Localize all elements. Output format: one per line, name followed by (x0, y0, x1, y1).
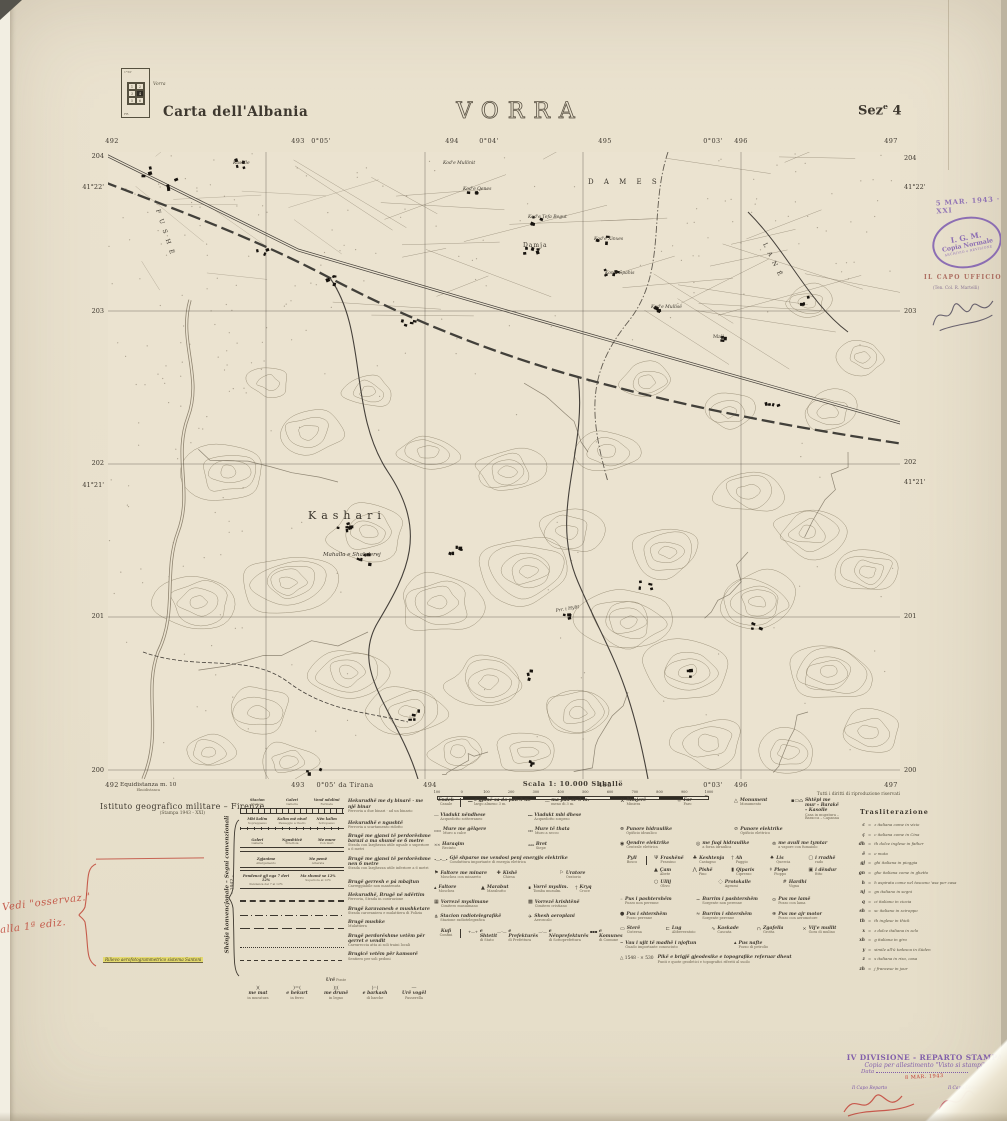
legend-item: —·—e Nënprefekturësdi Sottoprefettura (538, 929, 583, 943)
legend-italian: Punti e quote geodetici e topografici ri… (658, 961, 792, 965)
legend-item-text: Pus me ajr motorPozzo con aeromotore (778, 912, 842, 921)
legend-item-text: Vau i ujit të madhë i njoftunGuado impor… (625, 941, 728, 950)
legend-row: ●Pus i shtershëmPozzo perenne≈Burrim i s… (620, 912, 842, 921)
legend-description: Brugë karavanesh e mushketareStrada caro… (348, 907, 432, 916)
legend-item-text: LisQuercia (776, 856, 803, 865)
legend-row: ▴FaltoreMoschea▲MarabutMarabutto∎Vorrë m… (434, 885, 616, 894)
translit-letter: zh (852, 967, 865, 972)
legend-item: ∩ZgafellaGrotta (757, 926, 797, 935)
legend-tree-line: ○UllijOlivo◌ProtokalleAgrumi#HardhiVigna (654, 880, 842, 889)
legend-item: ▭▭Mure me gëlqereMuro a calce (434, 827, 522, 836)
legend-row: KufiConfini+—+e Shtetitdi Stato—··—e Pre… (434, 929, 616, 943)
mark-italian: Stazione (241, 803, 274, 806)
legend-item-text: i rradhërado (815, 856, 842, 865)
legend-line-sample: ▭▭ (434, 828, 441, 833)
legend-glyph: ◌ (718, 880, 722, 885)
legend-item: ▮QiparisCipresso (731, 868, 765, 877)
legend-italian: rado (815, 861, 842, 865)
legend-item-text: FaltoreMoschea (439, 885, 475, 894)
translit-letter: y (852, 948, 865, 953)
legend-item-text: e Prefekturësdi Prefettura (508, 929, 538, 943)
legend-line-sample: +—+ (468, 929, 478, 934)
legend-item-text: LugAbbeveratoio (672, 926, 705, 935)
legend-bridge-item: )◦(e barkashdi barche (357, 986, 393, 1001)
legend-italian: di Prefettura (508, 939, 538, 943)
bridge-label-it: in legno (329, 997, 343, 1001)
scale-tick-label: 300 (533, 790, 539, 794)
legend-italian: Pozzo perenne (626, 917, 690, 921)
group-italian: Bosco (620, 861, 644, 865)
legend-glyph: ~ (696, 898, 700, 903)
legend-glyph: ≈ (696, 912, 700, 917)
transliteration-row: xh=g italiana in giro (852, 937, 1004, 943)
mark-italian: Soprappasso (241, 822, 274, 825)
legend-line-sample: ×× (434, 842, 440, 847)
legend-symbol-marks: StacionStazioneGaleriGalleriaVend ndalim… (240, 799, 344, 806)
legend-item-text: PishëPino (699, 868, 726, 877)
legend-item: ──ma pak se 3 m.meno di 3 m. (545, 798, 616, 807)
legend-italian: Faro (683, 803, 728, 807)
legend-mark: Ma shumë se 12%Superiore al 12% (292, 875, 344, 886)
legend-item-text: Pus i shtershëmPozzo perenne (626, 912, 690, 921)
legend-glyph: ⊚ (772, 842, 776, 847)
legend-row: Mbi kalimSoprappassoKalim më nivelPassag… (240, 818, 432, 830)
legend-item: ◎me fuqi hidraulikea forza idraulica (696, 841, 766, 850)
legend-item: ⊚me avull me tymtara vapore con fumaiolo (772, 841, 842, 850)
graticule-bottom-label: 0°05' da Tirana (316, 781, 373, 789)
bridge-name-it: Ponte (335, 978, 346, 982)
legend-item-text: MarabutMarabutto (487, 885, 522, 894)
legend-italian: Oratorio (566, 876, 616, 880)
translit-letter: sh (852, 909, 865, 914)
legend-item-text: Vorrezë krishtënëCimitero cristiano (535, 900, 616, 909)
legend-italian: Carrareccia atta ai soli traini locali (348, 944, 432, 948)
map-canvas: KasolleKod'e MullinitKod'e QenesKod'e Te… (108, 152, 900, 779)
legend-mark: Me pemëAlberata (292, 858, 344, 865)
equals-sign: = (868, 870, 871, 875)
legend-glyph: † (575, 886, 578, 891)
place-name-label: Kod'e Tefa Begut (527, 214, 567, 220)
scale-ticks: 10001002003004005006007008009001000 m. (437, 790, 709, 795)
equals-sign: = (868, 841, 871, 846)
legend-glyph: ⚑ (434, 871, 438, 876)
equals-sign: = (868, 918, 871, 923)
legend-item-text: KaskadeCascata (717, 926, 750, 935)
legend-bridge-title: Urë Ponte (240, 966, 432, 985)
legend-glyph: ⚒ (620, 799, 624, 804)
index-cell-2: 2 (136, 83, 144, 90)
legend-italian: Cimitero musulmano (441, 905, 522, 909)
graticule-right-label: 201 (904, 612, 916, 620)
graticule-left-label: 203 (70, 307, 104, 315)
paper-crease (948, 0, 949, 170)
place-name-label: Damja (523, 242, 548, 249)
legend-description: Brugë gerresh e pá mbajtunCarreggiabile … (348, 880, 432, 889)
legend-item: —··—e Prefekturësdi Prefettura (497, 929, 532, 943)
graticule-left-label: 200 (70, 766, 104, 774)
sez-label: Sez (858, 103, 883, 118)
legend-glyph: ▲ (481, 886, 485, 891)
equals-sign: = (868, 860, 871, 865)
scale-tick-label: 800 (656, 790, 662, 794)
graticule-top-label: 496 (734, 137, 748, 145)
legend-item: ●Pus i shtershëmPozzo perenne (620, 912, 690, 921)
legend-item: ⊗Punore hidraulikeOpificio idraulico (620, 827, 728, 836)
translit-letter: nj (852, 890, 865, 895)
graticule-bottom-label: 496 (734, 781, 748, 789)
graticule-right-label: 41°22' (904, 183, 926, 191)
sez-sup: e (883, 102, 888, 111)
legend-item-text: MinjerëMiniera (626, 798, 671, 807)
legend-glyph: ⋀ (693, 868, 697, 873)
graticule-top-label: 495 (598, 137, 612, 145)
translit-description: z dolce italiana in zelo (874, 929, 1004, 933)
legend-row: ZgjanimeAllargamentoMe pemëAlberataBrugë… (240, 857, 432, 871)
legend-item-text: KeshtenjaCastagno (699, 856, 726, 865)
legend-symbol-finedash (240, 960, 344, 961)
legend-description: Hekurudhë me dy binarë · me një binarFer… (348, 799, 432, 813)
index-sheet-name: Vorra (153, 82, 166, 87)
legend-item: †KryqCroce (575, 885, 616, 894)
legend-glyph: △ (734, 799, 738, 804)
legend-item: ×Vij'e mullitGora di mulino (802, 926, 842, 935)
equals-sign: = (868, 899, 871, 904)
legend-item-text: Shesh aeroplaniAeroscalo (534, 914, 616, 923)
legend-row: ◉Qendre elektrikeCentrale elettrica◎me f… (620, 841, 842, 850)
scale-tick-label: 200 (508, 790, 514, 794)
equals-sign: = (868, 832, 871, 837)
legend-row: PyllBoscoΨFrashënëFrassino♣KeshtenjaCast… (620, 856, 842, 892)
data-label: Data (861, 1069, 874, 1075)
place-name-label: Kod'e Xinxes (593, 236, 624, 242)
legend-item-text: ÇamAbete (660, 868, 688, 877)
legend-symbol-block: Mbi kalimSoprappassoKalim më nivelPassag… (240, 818, 344, 830)
legend-item-text: Shtëpi me mur – Barakë – KasolleCasa in … (805, 798, 842, 821)
legend-item-text: MonumentMonumento (740, 798, 785, 807)
scale-tick-label: 900 (681, 790, 687, 794)
scale-tick-label: 100 (434, 790, 440, 794)
legend-item-text: Burrim i pashtershëmSorgente non perenne (702, 897, 766, 906)
legend-item-text: Vorrë myslim.Tomba musulm. (533, 885, 569, 894)
graticule-right-label: 202 (904, 458, 916, 466)
legend-item: ━━e gjanë sa do pak 3 m.largo almeno 3 m… (468, 798, 539, 807)
graticule-bottom-label: 497 (884, 781, 898, 789)
transliteration-row: sh=sc italiano in sciroppo (852, 908, 1004, 914)
legend-item-text: Qendre elektrikeCentrale elettrica (626, 841, 690, 850)
legend-item: ◉Qendre elektrikeCentrale elettrica (620, 841, 690, 850)
place-name-label: Kasolle (232, 160, 250, 166)
legend-item-text: FarFaro (683, 798, 728, 807)
bridge-name: Urë (326, 978, 335, 983)
legend-glyph: ∩ (757, 927, 761, 932)
scale-tick-label: 100 (483, 790, 489, 794)
translit-letter: x (852, 929, 865, 934)
legend-item: ≈Burrim i shtershëmSorgente perenne (696, 912, 766, 921)
legend-symbol-block: GaleriGalleriaNgushticëStrettoiaMe mureC… (240, 839, 344, 853)
legend-glyph: ⚐ (559, 871, 563, 876)
legend-item-text: KryqCroce (580, 885, 617, 894)
translit-letter: ë (852, 852, 865, 857)
place-name-label: Kod'e Mullinit (442, 160, 475, 166)
translit-description: gn italiano in segni (874, 890, 1004, 894)
legend-glyph: # (783, 880, 787, 885)
legend-glyph: ♠ (770, 856, 774, 861)
translit-description: c italiana come in Cina (874, 833, 1004, 837)
sez-num: 4 (893, 103, 902, 118)
legend-mark: Kalim më nivelPassaggio a livello (275, 818, 310, 825)
legend-italian: Opificio idraulico (626, 832, 728, 836)
index-cell-1: 1 (128, 83, 136, 90)
legend-italian: Acquedotto sospeso (534, 818, 616, 822)
sheet-number: Seze 4 (858, 102, 902, 118)
index-cell-5: 5 (128, 97, 136, 104)
legend-item: ▴Pus naftePozzo di petrolio (734, 941, 842, 950)
legend-italian: Monumento (740, 803, 785, 807)
legend-row: ▭▭Mure me gëlqereMuro a calce▫▫Mure të t… (434, 827, 616, 836)
index-grid: 123456 (127, 82, 145, 105)
legend-glyph: ✈ (528, 915, 532, 920)
legend-item: ⊛Pus me ajr motorPozzo con aeromotore (772, 912, 842, 921)
legend-row-bridges: Urë Ponte)(me matin muratura)=(e hekurti… (240, 966, 432, 1001)
legend-item: ⋀PishëPino (693, 868, 727, 877)
legend-row: ▭SterëCisterna⊏LugAbbeveratoio∿KaskadeCa… (620, 926, 842, 935)
legend-row: ⊗Punore hidraulikeOpificio idraulico⊘Pun… (620, 827, 842, 836)
legend-item-text: e Komunesdi Comune (599, 929, 623, 943)
translit-description: h aspirata come nel toscano 'asa per cas… (874, 881, 1004, 885)
graticule-right-label: 200 (904, 766, 916, 774)
legend-glyph: ▦ (434, 900, 439, 905)
transliteration-row: x=z dolce italiana in zelo (852, 928, 1004, 934)
legend-glyph: × (802, 927, 806, 932)
mark-italian: Fermata (310, 803, 343, 806)
legend-item: ▴FaltoreMoschea (434, 885, 475, 894)
legend-italian: Conduttura importante di energia elettri… (450, 861, 616, 865)
legend-italian: Opificio elettrico (740, 832, 842, 836)
legend-italian: Ferrovia, Strada in costruzione (348, 898, 432, 902)
legend-italian: Pozzo con aeromotore (778, 917, 842, 921)
red-annotation-line (96, 857, 204, 859)
legend-bridge-items: )(me matin muratura)=(e hekurtin ferro)¦… (240, 986, 432, 1001)
legend-item-text: ma pak se 3 m.meno di 3 m. (551, 798, 616, 807)
graticule-bottom-label: 494 (423, 781, 437, 789)
legend-item-text: e Nënprefekturësdi Sottoprefettura (549, 929, 589, 943)
transliteration-row: ç=c italiana come in Cina (852, 832, 1004, 838)
graticule-left-label: 201 (70, 612, 104, 620)
legend-italian: Chiesa (503, 876, 553, 880)
legend-symbol-road3 (240, 888, 344, 889)
legend-glyph: Ψ (654, 856, 658, 861)
bridge-label-it: in muratura (247, 997, 268, 1001)
legend-glyph: ⊘ (734, 827, 738, 832)
legend-italian: Guado importante conosciuto (625, 946, 728, 950)
translit-letter: xh (852, 938, 865, 943)
legend-description: Brugë me gjansi të perdorëshme nen 6 met… (348, 857, 432, 871)
legend-bridge-item: —Urë vogëlPasserella (396, 986, 432, 1001)
legend-italian: di Sottoprefettura (549, 939, 589, 943)
legend-item-text: KishëChiesa (503, 871, 553, 880)
equals-sign: = (868, 851, 871, 856)
legend-item-text: AhFaggio (736, 856, 765, 865)
mark-italian: Strettoia (276, 842, 309, 845)
legend-row: ⋔Stacion radiotelegrafikëStazione radiot… (434, 914, 616, 923)
translit-letter: h (852, 881, 865, 886)
graticule-right-label: 41°21' (904, 478, 926, 486)
graticule-bottom-label: 493 (291, 781, 305, 789)
scale-tick-label: 0 (461, 790, 463, 794)
transliteration-row: zh=j francese in jour (852, 966, 1004, 972)
legend-italian: Moschea con minareto (440, 876, 490, 880)
place-name-label: Kod'e Qenes (462, 186, 492, 192)
legend-italian: Abete (660, 873, 688, 877)
legend-line-sample: ▫▫ (528, 828, 533, 833)
translit-letter: ç (852, 833, 865, 838)
legend-glyph: ● (620, 912, 624, 917)
legend-tree-rows: ΨFrashënëFrassino♣KeshtenjaCastagno†AhFa… (654, 856, 842, 892)
legend-symbol-dashdot (240, 915, 344, 916)
graticule-bottom-label: 492 (105, 781, 119, 789)
legend-italian: Carreggiabile non mantenuta (348, 885, 432, 889)
legend-item: ××HaraqimRecinto (434, 842, 522, 851)
legend-italian: Cisterna (627, 931, 660, 935)
legend-italian: di Comune (599, 939, 623, 943)
legend-item: ▲MarabutMarabutto (481, 885, 522, 894)
place-name-label: Kon'e Spahis (604, 270, 635, 276)
legend-glyph: ▴ (734, 941, 737, 946)
legend-item-text: Vorrezë myslimaneCimitero musulmano (441, 900, 522, 909)
legend-item-text: Faltore me minareMoschea con minareto (440, 871, 490, 880)
legend-item: ⚒MinjerëMiniera (620, 798, 671, 807)
legend-item: ◦Pus i pashtershëmPozzo non perenne (620, 897, 690, 906)
index-corner-label: 1°50' (124, 70, 132, 74)
translit-description: ghe italiana come in ghetto (874, 871, 1004, 875)
legend-item-text: FrashënëFrassino (660, 856, 687, 865)
legend-tree-line: ▲ÇamAbete⋀PishëPino▮QiparisCipressoǂPlep… (654, 868, 842, 877)
legend-description: Hekurudhë, Brugë në ndërtimFerrovia, Str… (348, 893, 432, 902)
legend-glyph: ▩ (528, 900, 533, 905)
legend-bridge-item: )¦(me drunëin legno (318, 986, 354, 1001)
legend-row: GaleriGalleriaNgushticëStrettoiaMe mureC… (240, 834, 432, 852)
legend-item: ▩Vorrezë krishtënëCimitero cristiano (528, 900, 616, 909)
equals-sign: = (868, 937, 871, 942)
legend-geodetic-row: △ 1548 · × 530Pikë e brigjë gjeodesike e… (620, 955, 792, 964)
legend-italian: a vapore con fumaiolo (778, 846, 842, 850)
legend-symbol-block: Pendencë gji nga 7 deri 12%Pendenza dal … (240, 875, 344, 888)
legend-description: Brugë perdorëshme vetëm për qerret e ven… (348, 934, 432, 948)
legend-item: ⊙Pus me lamëPozzo con lama (772, 897, 842, 906)
legend-symbol-road4 (240, 867, 344, 871)
legend-item-text: Stacion radiotelegrafikëStazione radiote… (440, 914, 522, 923)
legend-item: #HardhiVigna (783, 880, 842, 889)
legend-glyph: ⌣ (620, 941, 623, 946)
group-italian: Confini (434, 934, 458, 938)
index-corner-label: FR. (124, 112, 129, 116)
translit-description: simile all'ü tedesca in Süden (874, 948, 1004, 952)
legend-row: Brugë mushkeMulattiera (240, 920, 432, 929)
page-curl (918, 1038, 1007, 1121)
equals-sign: = (868, 880, 871, 885)
legend-row: Brugë karavanesh e mushketareStrada caro… (240, 907, 432, 916)
capo-ufficio-name: (Ten. Col. R. Martelli) (933, 285, 979, 290)
legend-symbol-marks: GaleriGalleriaNgushticëStrettoiaMe mureC… (240, 839, 344, 846)
legend-italian: Pioppo (774, 873, 803, 877)
legend-item: ♠LisQuercia (770, 856, 804, 865)
legend-symbol-block (240, 899, 344, 903)
graticule-top-label: 0°05' (311, 137, 330, 145)
transliteration-row: gj=ghi italiana in pioggia (852, 860, 1004, 866)
graticule-top-label: 494 (445, 137, 459, 145)
legend-row: ××HaraqimRecintoʌʌʌBretSiepe (434, 842, 616, 851)
legend-italian: Faggio (736, 861, 765, 865)
legend-symbol-marks: Mbi kalimSoprappassoKalim më nivelPassag… (240, 818, 344, 825)
series-title: Carta dell'Albania (163, 104, 308, 120)
bridge-label-it: Passerella (405, 997, 423, 1001)
scale-tick-label: 400 (557, 790, 563, 794)
legend-item-text: HaraqimRecinto (442, 842, 522, 851)
legend-item-text: ZgafellaGrotta (763, 926, 796, 935)
legend-glyph: ∿ (711, 927, 715, 932)
scan-edge-strip (0, 0, 10, 1121)
legend-italian: Sorgente perenne (702, 917, 766, 921)
legend-item-text: PlepePioppo (774, 868, 803, 877)
transliteration-row: c=z italiana come in vizio (852, 822, 1004, 828)
legend-italian: Muro a calce (443, 832, 522, 836)
translit-description: z italiana come in vizio (874, 823, 1004, 827)
legend-item: ▪▭⌂Shtëpi me mur – Barakë – KasolleCasa … (791, 798, 842, 821)
legend-line-sample: •—•—• (434, 857, 448, 862)
translit-description: th inglese in thick (874, 919, 1004, 923)
legend-symbol-marks: Pendencë gji nga 7 deri 12%Pendenza dal … (240, 875, 344, 886)
legend-symbol-rail2 (240, 808, 344, 814)
legend-italian: Casa in muratura – Baracca – Capanna (805, 814, 842, 822)
legend-item: ▢i rradhërado (808, 856, 842, 865)
legend-italian: Quercia (776, 861, 803, 865)
legend-group-title: PyllBosco (620, 856, 647, 865)
translit-description: ghi italiana in pioggia (874, 861, 1004, 865)
translit-description: j francese in jour (874, 967, 1004, 971)
transliteration-title: Trasliterazione (860, 808, 1004, 816)
legend-item-text: Pus naftePozzo di petrolio (739, 941, 842, 950)
legend-item-text: QiparisCipresso (736, 868, 765, 877)
legend-italian: Castagno (699, 861, 726, 865)
transliteration-row: gn=ghe italiana come in ghetto (852, 870, 1004, 876)
legend-italian: Sorgente non perenne (702, 902, 766, 906)
legend-line-sample: ┄┄ (434, 813, 438, 818)
legend-glyph: ∎ (528, 886, 531, 891)
legend-italian: Mulattiera (348, 925, 432, 929)
translit-letter: q (852, 900, 865, 905)
transliteration-row: dh=th dolce inglese in father (852, 841, 1004, 847)
legend-row: Brugicë vetëm për kamsorëSentiero per so… (240, 952, 432, 961)
legend-item-text: BretSiepe (536, 842, 616, 851)
legend-item-text: i dëndurfitto (815, 868, 842, 877)
translit-letter: z (852, 957, 865, 962)
legend-glyph: ◎ (696, 842, 700, 847)
translit-description: sc italiano in sciroppo (874, 909, 1004, 913)
legend-row: ⌣Vau i ujit të madhë i njoftunGuado impo… (620, 941, 842, 950)
legend-symbol-longdash (240, 928, 344, 929)
legend-mark: Me mureCon muri (309, 839, 344, 846)
legend-italian: Sentiero per soli pedoni (348, 958, 432, 962)
legend-glyph: ▪▭⌂ (791, 799, 803, 804)
legend-mark: StacionStazione (240, 799, 275, 806)
legend-italian: Abbeveratoio (672, 931, 705, 935)
mark-italian: Alberata (293, 862, 343, 865)
legend-italian: Moschea (439, 890, 475, 894)
legend-description: Brugë me gjansi të perdorëshme barazi a … (348, 834, 432, 852)
igm-oval-stamp: I. G. M. Copia Normale ARCHIVIO e REVISI… (928, 211, 1006, 274)
legend-item: •—•—•Gjë shparse me vendosi penj energji… (434, 856, 616, 865)
legend-italian: Ferrovia a due binari · ad un binario (348, 810, 432, 814)
